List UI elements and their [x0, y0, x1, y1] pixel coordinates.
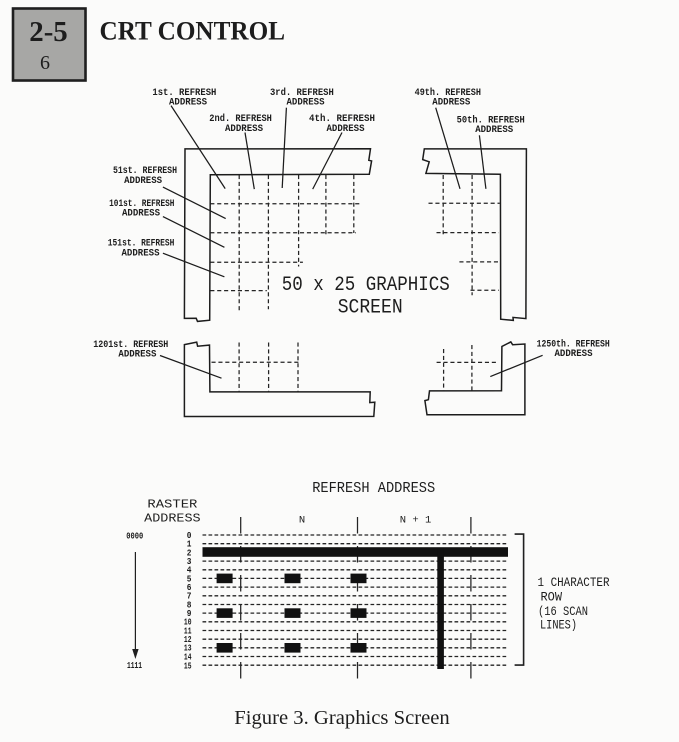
svg-text:ADDRESS: ADDRESS	[124, 176, 162, 187]
svg-text:ADDRESS: ADDRESS	[555, 349, 593, 360]
svg-text:50 x 25 GRAPHICS: 50 x 25 GRAPHICS	[282, 274, 450, 297]
svg-text:ROW: ROW	[541, 589, 563, 604]
svg-text:ADDRESS: ADDRESS	[327, 124, 365, 135]
svg-text:2-5: 2-5	[29, 17, 68, 48]
svg-text:ADDRESS: ADDRESS	[432, 98, 470, 109]
svg-text:RASTER: RASTER	[147, 498, 197, 512]
svg-text:0000: 0000	[126, 532, 143, 542]
svg-text:1111: 1111	[127, 661, 142, 671]
svg-text:ADDRESS: ADDRESS	[225, 124, 263, 135]
svg-text:ADDRESS: ADDRESS	[122, 209, 160, 220]
svg-text:6: 6	[40, 52, 50, 74]
svg-text:15: 15	[184, 661, 192, 671]
svg-text:N + 1: N + 1	[400, 514, 432, 526]
svg-text:SCREEN: SCREEN	[338, 296, 403, 319]
svg-text:ADDRESS: ADDRESS	[475, 125, 513, 136]
svg-text:ADDRESS: ADDRESS	[287, 97, 325, 108]
svg-text:ADDRESS: ADDRESS	[144, 511, 201, 525]
svg-text:1 CHARACTER: 1 CHARACTER	[538, 575, 610, 590]
svg-text:ADDRESS: ADDRESS	[122, 248, 160, 259]
svg-text:CRT CONTROL: CRT CONTROL	[100, 16, 286, 46]
svg-text:N: N	[299, 514, 305, 526]
svg-text:Figure 3. Graphics Screen: Figure 3. Graphics Screen	[234, 708, 450, 729]
svg-text:ADDRESS: ADDRESS	[169, 97, 207, 108]
svg-text:REFRESH ADDRESS: REFRESH ADDRESS	[312, 480, 435, 497]
svg-text:LINES): LINES)	[540, 617, 577, 632]
svg-text:ADDRESS: ADDRESS	[118, 349, 156, 360]
